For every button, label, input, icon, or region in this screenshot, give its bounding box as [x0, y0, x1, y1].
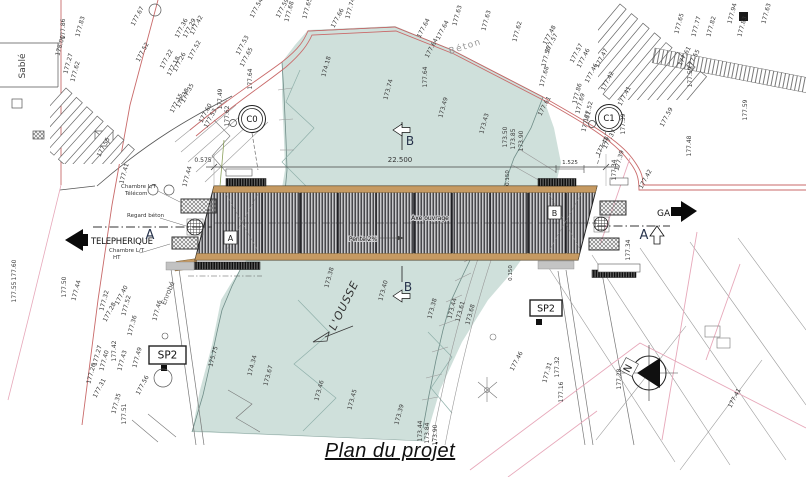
spot-elevation-label: 177.41 — [727, 387, 743, 409]
spot-elevation-label: 177.61 — [580, 110, 592, 132]
spot-elevation-label: 177.46 — [509, 350, 525, 372]
telepherique-arrow — [65, 229, 88, 251]
marker-c1-label: C1 — [603, 114, 614, 124]
spot-elevation-label: 177.68 — [538, 65, 550, 87]
deck-edge-bottom — [195, 254, 580, 261]
spot-elevation-label: 177.62 — [511, 20, 523, 42]
telepherique-label: TELEPHERIQUE — [90, 237, 153, 247]
ref-a-letter: A — [228, 234, 234, 243]
chambre-ht-label-2: HT — [113, 255, 121, 261]
spot-elevation-label: 177.28 — [616, 368, 623, 389]
spot-elevation-label: 177.83 — [74, 15, 86, 37]
spot-elevation-label: 177.50 — [61, 276, 68, 297]
drawing-caption: Plan du projet — [300, 440, 480, 463]
plan-drawing: TELEPHERIQUE GARE A A B B A B C0 C1 SP2 … — [0, 0, 806, 477]
spot-elevation-label: 177.67 — [130, 5, 146, 27]
dim-right-offset: 1.525 — [562, 160, 578, 166]
spot-elevation-label: 177.39 — [613, 149, 625, 171]
spot-elevation-label: 177.55 — [11, 281, 18, 302]
manhole-right — [594, 217, 608, 231]
spot-elevation-label: 177.59 — [659, 106, 675, 128]
site-plan-canvas: TELEPHERIQUE GARE A A B B A B C0 C1 SP2 … — [0, 0, 806, 477]
beton-label: Béton — [447, 36, 483, 57]
spot-elevation-label: 177.39 — [620, 113, 627, 134]
spot-elevation-label: 177.60 — [11, 259, 18, 280]
deck-edge-top — [212, 186, 597, 193]
spot-elevation-label: 177.63 — [760, 2, 772, 24]
sable-label: Sablé — [17, 53, 28, 78]
spot-elevation-label: 177.59 — [742, 99, 749, 120]
spot-elevation-label: 177.52 — [135, 41, 151, 63]
spot-elevation-label: 177.26 — [85, 362, 97, 384]
spot-elevation-label: 177.34 — [625, 239, 632, 260]
section-a-arrow — [650, 226, 664, 244]
spot-elevation-label: 177.36 — [126, 314, 138, 336]
spot-elevation-label: 173.50 — [502, 126, 509, 147]
spot-elevation-label: 177.48 — [686, 135, 693, 156]
dim-total-span: 22.500 — [388, 156, 413, 164]
spot-elevation-label: 177.41 — [118, 162, 130, 184]
sp2-right-label: SP2 — [537, 304, 555, 315]
spot-elevation-label: 177.83 — [736, 15, 748, 37]
spot-elevation-label: 177.49 — [217, 88, 224, 109]
spot-elevation-label: 177.52 — [187, 39, 203, 61]
spot-elevation-label: 177.77 — [690, 15, 702, 37]
spot-elevation-label: 173.90 — [518, 130, 525, 151]
dim-left-offset: 0.575 — [194, 157, 211, 164]
pente-label: Pente 2% — [349, 236, 378, 243]
spot-elevation-label: 177.65 — [301, 0, 313, 20]
spot-elevation-label: 177.44 — [181, 165, 193, 187]
ref-b-letter: B — [552, 209, 558, 218]
spot-elevation-label: 177.56 — [135, 374, 151, 396]
section-a-letter-right: A — [640, 228, 649, 243]
spot-elevation-label: 177.63 — [480, 9, 492, 31]
spot-elevation-label: 177.49 — [131, 346, 143, 368]
spot-elevation-label: 177.51 — [121, 403, 128, 424]
spot-elevation-label: 173.44 — [417, 420, 424, 441]
spot-elevation-label: 177.64 — [422, 66, 429, 87]
spot-elevation-label: 177.64 — [435, 19, 451, 41]
sp2-left-label: SP2 — [158, 350, 178, 362]
chambre-ht-label-1: Chambre L/T — [109, 248, 145, 254]
dim-deck-edge-bottom: 0.150 — [508, 265, 514, 281]
spot-elevation-label: 177.94 — [726, 2, 738, 24]
section-a-letter-left: A — [146, 228, 155, 243]
spot-elevation-label: 177.54 — [249, 0, 265, 19]
axe-ouvrage-label: Axe ouvrage — [411, 215, 449, 222]
spot-elevation-label: 177.86 — [60, 18, 67, 39]
section-b-letter-bottom: B — [404, 280, 412, 294]
spot-elevation-label: 177.44 — [70, 279, 82, 301]
spot-elevation-label: 177.65 — [673, 12, 685, 34]
spot-elevation-label: 177.42 — [111, 340, 118, 361]
spot-elevation-label: 177.46 — [584, 62, 600, 84]
spot-elevation-label: 177.56 — [540, 45, 552, 67]
spot-elevation-label: 177.31 — [541, 361, 553, 383]
spot-elevation-label: 177.74 — [344, 0, 356, 20]
spot-elevation-label: 177.63 — [451, 4, 463, 26]
spot-elevation-label: 177.64 — [247, 68, 254, 89]
spot-elevation-label: 177.62 — [224, 105, 231, 126]
spot-elevation-label: 177.64 — [416, 17, 432, 39]
marker-c0-label: C0 — [246, 115, 257, 125]
spot-elevation-label: 177.46 — [151, 299, 163, 321]
spot-elevation-label: 173.85 — [510, 128, 517, 149]
spot-elevation-label: 177.82 — [705, 15, 717, 37]
stairs-hatch-topleft — [27, 88, 134, 193]
regard-beton-label: Regard béton — [127, 212, 165, 219]
section-b-letter-top: B — [406, 134, 414, 148]
chambre-telecom-label-2: Télécom — [124, 190, 147, 197]
spot-elevation-label: 177.32 — [554, 356, 561, 377]
spot-elevation-label: 177.59 — [687, 66, 694, 87]
spot-elevation-label: 177.43 — [116, 349, 128, 371]
spot-elevation-label: 177.16 — [558, 381, 565, 402]
building-outlines — [0, 4, 174, 195]
dim-deck-edge-top: 0.150 — [505, 170, 511, 186]
chambre-telecom-label-1: Chambre L/T — [121, 184, 157, 190]
spot-elevation-label: 177.31 — [92, 377, 108, 399]
parcel-lines — [545, 238, 806, 470]
